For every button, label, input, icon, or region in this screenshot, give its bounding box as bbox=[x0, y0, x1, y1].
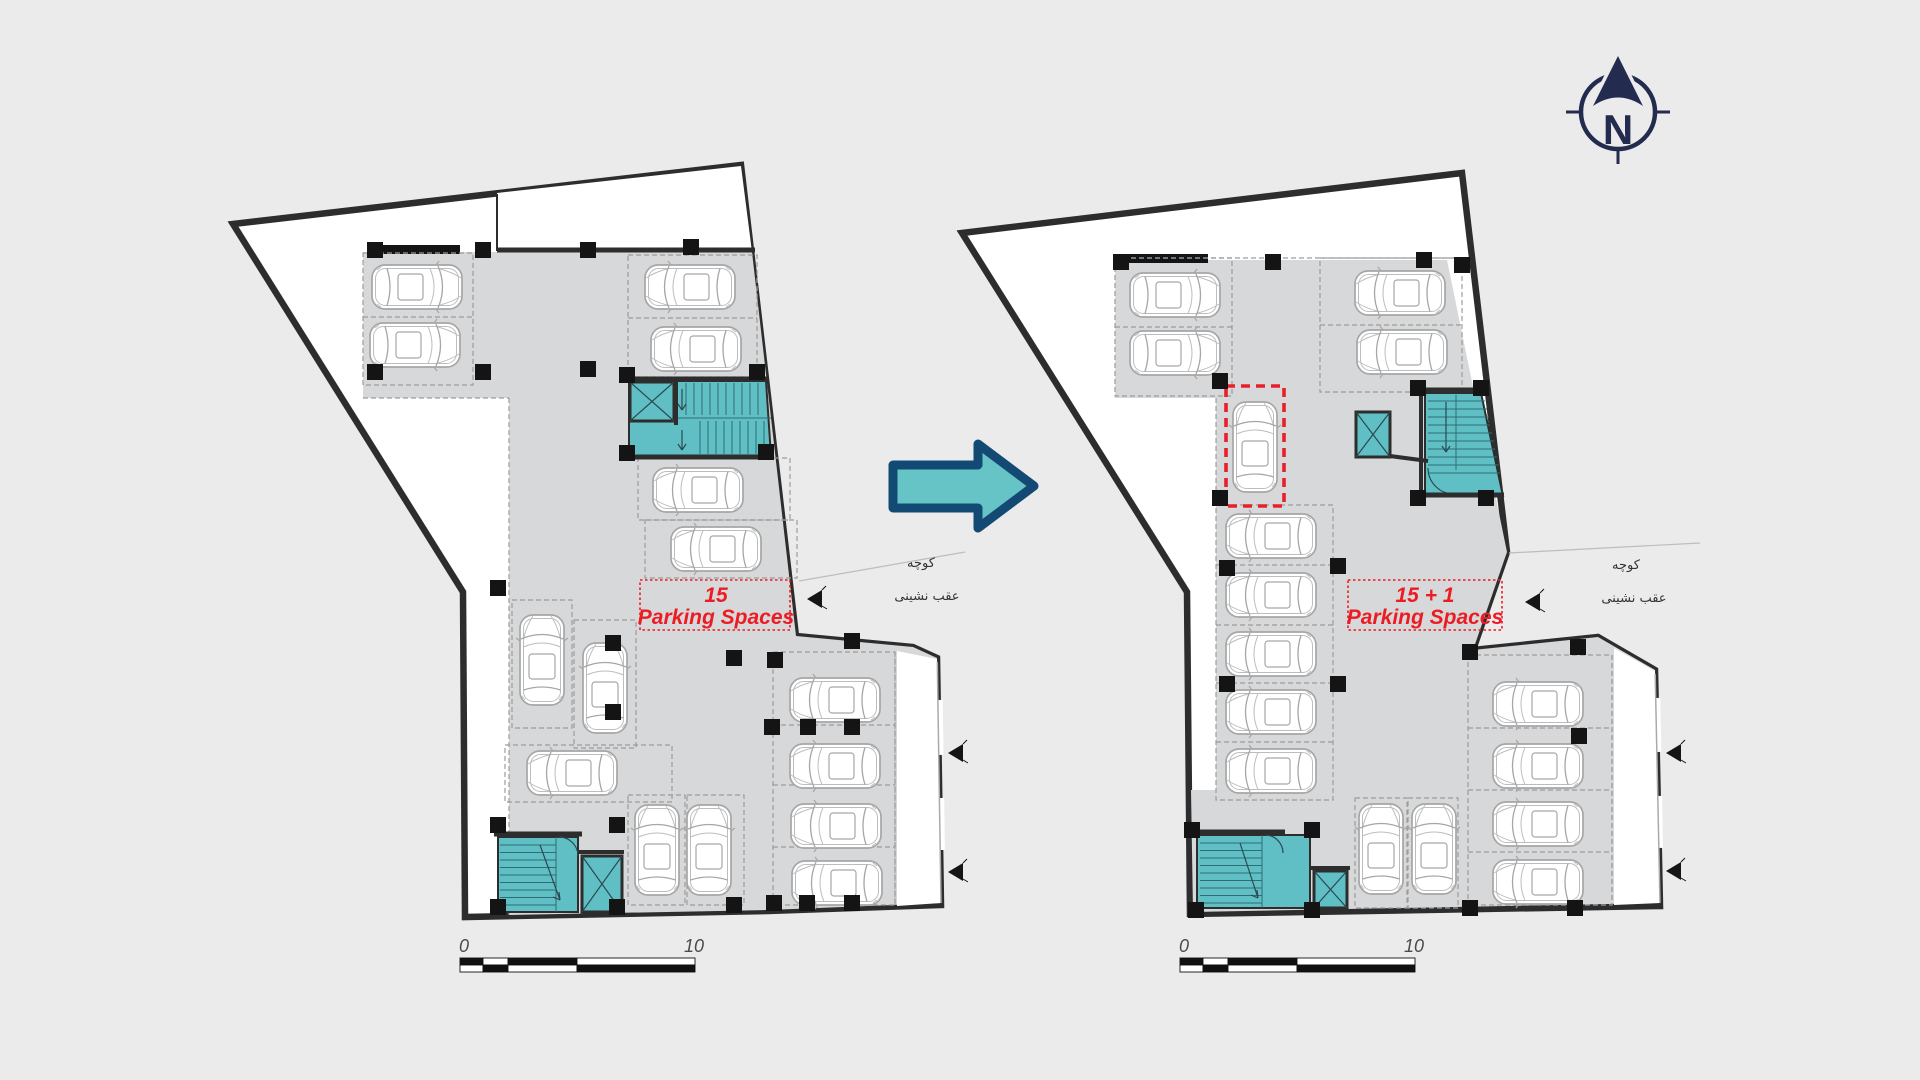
car bbox=[1226, 569, 1316, 621]
car bbox=[1226, 745, 1316, 797]
caption-label-before: Parking Spaces bbox=[638, 606, 794, 629]
floor-plan-after: 15 + 1 Parking Spaces کوچه عقب نشینی 0 1… bbox=[962, 173, 1700, 972]
upper-room bbox=[497, 166, 752, 252]
car bbox=[631, 805, 683, 895]
driveway-strip bbox=[1614, 648, 1660, 905]
entrance-arrow-icon bbox=[1525, 589, 1545, 612]
car bbox=[1493, 798, 1583, 850]
car bbox=[1226, 686, 1316, 738]
alley-line-before bbox=[799, 552, 965, 581]
car bbox=[653, 464, 743, 516]
car bbox=[790, 674, 880, 726]
scale-bar-after: 0 10 bbox=[1179, 936, 1424, 972]
stair-core-mid-before bbox=[627, 379, 773, 457]
car-added bbox=[1229, 402, 1281, 492]
count-label-after: 15 + 1 bbox=[1396, 584, 1455, 607]
car bbox=[645, 261, 735, 313]
entrance-arrow-icon bbox=[1666, 740, 1686, 763]
scale-zero-after: 0 bbox=[1179, 936, 1189, 956]
car bbox=[1226, 628, 1316, 680]
scale-zero-before: 0 bbox=[459, 936, 469, 956]
scale-ten-before: 10 bbox=[684, 936, 704, 956]
car bbox=[671, 523, 761, 575]
car bbox=[1493, 740, 1583, 792]
car bbox=[1130, 269, 1220, 321]
car bbox=[1355, 267, 1445, 319]
car bbox=[1408, 804, 1460, 894]
floor-plan-before: 15 Parking Spaces کوچه عقب نشینی 0 10 bbox=[233, 165, 968, 972]
north-letter: N bbox=[1603, 106, 1633, 153]
parking-plan-canvas: 15 Parking Spaces کوچه عقب نشینی 0 10 bbox=[0, 0, 1920, 1080]
north-compass-icon: N bbox=[1566, 56, 1670, 164]
car bbox=[370, 319, 460, 371]
car bbox=[1226, 510, 1316, 562]
entrance-arrow-icon bbox=[948, 859, 968, 882]
car bbox=[1357, 326, 1447, 378]
count-label-before: 15 bbox=[704, 584, 728, 607]
car bbox=[651, 323, 741, 375]
car bbox=[527, 747, 617, 799]
car bbox=[516, 615, 568, 705]
entrance-arrow-icon bbox=[807, 586, 827, 609]
entrance-arrow-icon bbox=[1666, 858, 1686, 881]
scale-bar-before: 0 10 bbox=[459, 936, 704, 972]
car bbox=[1355, 804, 1407, 894]
setback-label-before: عقب نشینی bbox=[894, 589, 959, 604]
alley-line-after bbox=[1509, 543, 1700, 553]
car bbox=[1493, 678, 1583, 730]
car bbox=[372, 261, 462, 313]
scale-ten-after: 10 bbox=[1404, 936, 1424, 956]
entrance-arrow-icon bbox=[948, 740, 968, 763]
car bbox=[791, 800, 881, 852]
transition-arrow-icon bbox=[893, 444, 1034, 528]
car bbox=[1130, 327, 1220, 379]
caption-label-after: Parking Spaces bbox=[1347, 606, 1503, 629]
street-label-after: کوچه bbox=[1612, 558, 1641, 573]
car bbox=[683, 805, 735, 895]
street-label-before: کوچه bbox=[907, 556, 936, 571]
driveway-strip bbox=[897, 651, 941, 906]
setback-label-after: عقب نشینی bbox=[1601, 591, 1666, 606]
car bbox=[790, 740, 880, 792]
